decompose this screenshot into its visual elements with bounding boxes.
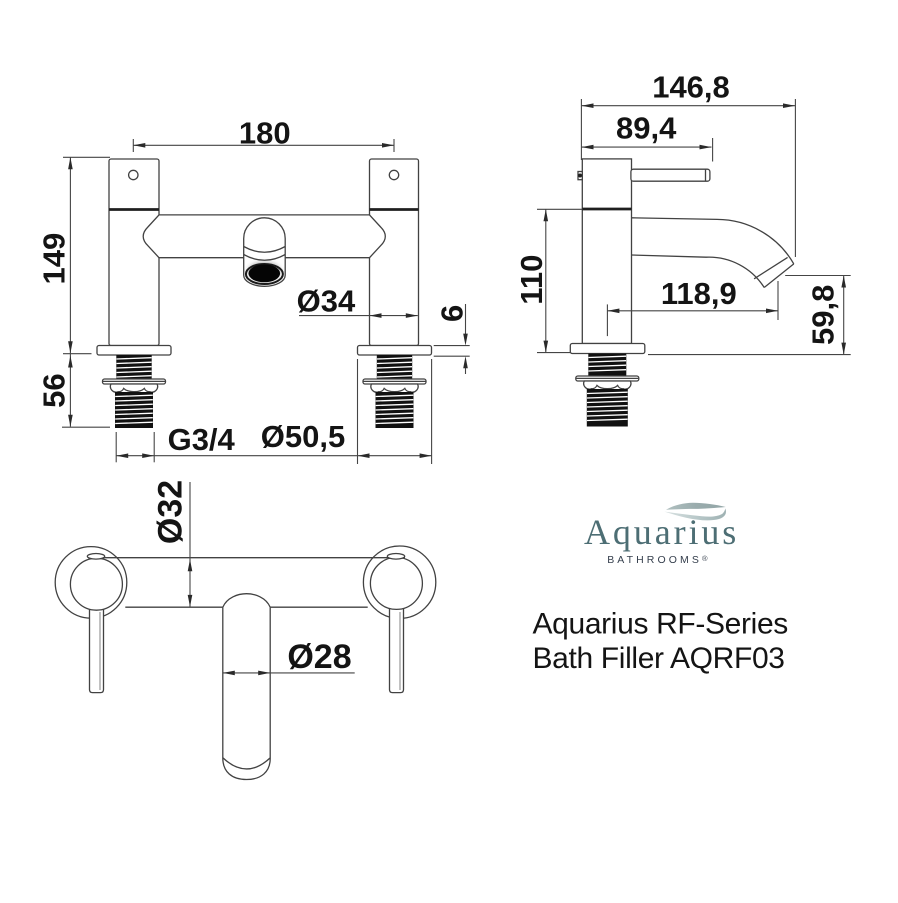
svg-text:146,8: 146,8 <box>652 70 730 105</box>
svg-text:G3/4: G3/4 <box>168 422 236 457</box>
svg-text:149: 149 <box>37 233 72 285</box>
svg-text:89,4: 89,4 <box>616 111 677 146</box>
svg-text:56: 56 <box>37 373 72 407</box>
svg-text:BATHROOMS®: BATHROOMS® <box>607 554 708 566</box>
svg-text:Aquarius RF-Series: Aquarius RF-Series <box>533 608 788 641</box>
svg-text:Bath Filler AQRF03: Bath Filler AQRF03 <box>533 642 785 675</box>
svg-text:Ø28: Ø28 <box>287 638 351 676</box>
svg-text:118,9: 118,9 <box>661 276 737 311</box>
svg-text:110: 110 <box>514 255 549 305</box>
svg-text:Aquarius: Aquarius <box>584 512 739 552</box>
svg-text:59,8: 59,8 <box>805 285 840 345</box>
svg-text:Ø50,5: Ø50,5 <box>261 419 345 454</box>
svg-text:Ø32: Ø32 <box>152 480 190 544</box>
svg-text:180: 180 <box>239 116 291 151</box>
svg-text:Ø34: Ø34 <box>297 284 356 319</box>
svg-text:6: 6 <box>434 305 469 322</box>
